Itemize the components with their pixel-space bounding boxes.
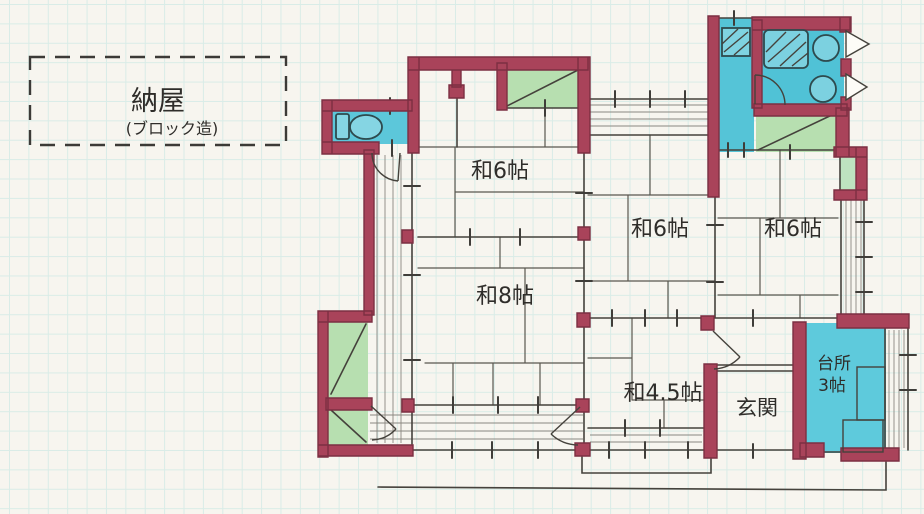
toilet-door-swing <box>372 153 400 181</box>
toilet-bowl-icon <box>350 115 382 139</box>
annex-outbuilding: 納屋 (ブロック造) <box>30 57 286 145</box>
washing-machine-icon <box>813 35 839 61</box>
toilet-tank-icon <box>336 114 349 139</box>
bathtub-icon <box>764 30 808 68</box>
label-kitchen-line2: 3帖 <box>818 376 846 396</box>
label-tatami45: 和4.5帖 <box>624 381 703 406</box>
label-tatami6-east: 和6帖 <box>764 217 822 242</box>
bath-outer-door-leaf-upper <box>846 31 869 57</box>
floor-plan-page: 納屋 (ブロック造) <box>0 0 924 514</box>
closet-west-lower-fill <box>328 410 368 445</box>
bath-outer-door-leaf-lower <box>846 74 867 100</box>
annex-note: (ブロック造) <box>126 119 219 138</box>
label-entrance: 玄関 <box>736 396 778 420</box>
laundry-tub-icon <box>810 76 836 102</box>
floor-plan-drawing: 納屋 (ブロック造) <box>0 0 924 514</box>
label-tatami8: 和8帖 <box>476 284 534 309</box>
closet-small-fill <box>840 155 857 191</box>
tatami-grid-lines <box>418 108 838 428</box>
annex-label: 納屋 <box>131 86 185 117</box>
label-kitchen-line1: 台所 <box>817 354 851 374</box>
label-tatami6-center: 和6帖 <box>631 217 689 242</box>
label-tatami6-north: 和6帖 <box>471 159 529 184</box>
